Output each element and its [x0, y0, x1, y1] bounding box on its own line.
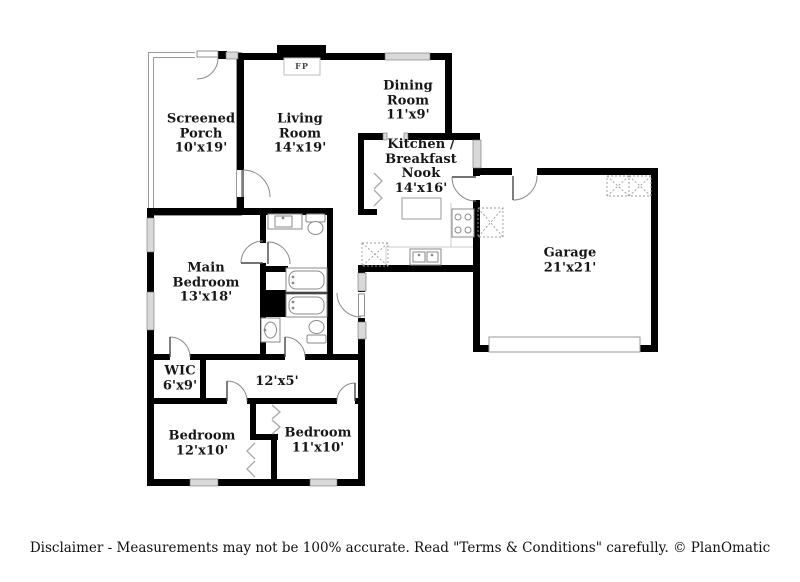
room-label-living-room: Living Room 14'x19' [270, 112, 330, 156]
bathtub1-icon [286, 268, 327, 292]
room-label-dining-room: Dining Room 11'x9' [378, 79, 438, 123]
bedroom-window1-icon [147, 218, 154, 252]
bathtub2-icon [286, 294, 327, 317]
dishwasher-icon [362, 243, 388, 266]
porch-door-jamb [218, 51, 227, 59]
bath2-door-icon [285, 337, 305, 357]
hvac-units-icon [607, 176, 651, 196]
bottom-window1-icon [190, 479, 218, 486]
bedroom-window2-icon [147, 292, 154, 330]
water-heater-icon [478, 208, 503, 237]
fireplace-chimney [277, 45, 326, 54]
vanity-sink2-icon [261, 318, 280, 342]
bedroom-right-door-icon [337, 383, 355, 401]
rear-window2-icon [358, 322, 366, 339]
closet-left-bifold-icon [247, 443, 255, 477]
room-label-bedroom-right: Bedroom 11'x10' [273, 427, 363, 456]
porch-window-icon [226, 52, 238, 59]
toilet2-icon [307, 321, 326, 344]
wic-door-icon [170, 337, 190, 357]
stove-icon [452, 209, 474, 237]
floor-plan-page: Screened Porch 10'x19' Living Room 14'x1… [0, 0, 800, 582]
toilet1-icon [306, 214, 325, 235]
porch-door-icon [197, 58, 218, 79]
kitchen-window-icon [473, 140, 481, 168]
room-label-kitchen: Kitchen / Breakfast Nook 14'x16' [378, 138, 464, 196]
dining-window-icon [385, 53, 430, 60]
bathroom-fixtures [261, 214, 327, 343]
room-label-screened-porch: Screened Porch 10'x19' [156, 112, 246, 156]
fireplace-label: FP [295, 61, 309, 71]
kitchen-island-icon [402, 198, 441, 219]
kitchen-fixtures [362, 198, 474, 266]
living-porch-door-icon [243, 170, 270, 197]
room-label-main-bedroom: Main Bedroom 13'x18' [166, 261, 246, 305]
rear-window1-icon [358, 273, 366, 291]
garage-door-icon [489, 337, 640, 352]
bottom-window2-icon [310, 479, 337, 486]
room-label-hallway: 12'x5' [242, 375, 312, 390]
room-label-garage: Garage 21'x21' [520, 247, 620, 276]
vanity-sink1-icon [268, 214, 302, 229]
disclaimer-text: Disclaimer - Measurements may not be 100… [0, 540, 800, 556]
kitchen-sink-icon [410, 249, 441, 265]
chimney-chase [262, 293, 288, 317]
bath1-door-icon [268, 242, 290, 264]
room-label-wic: WIC 6'x9' [150, 365, 210, 394]
room-label-bedroom-left: Bedroom 12'x10' [157, 430, 247, 459]
main-bedroom-door-icon [241, 241, 263, 263]
garage-entry-door-icon [513, 176, 537, 200]
